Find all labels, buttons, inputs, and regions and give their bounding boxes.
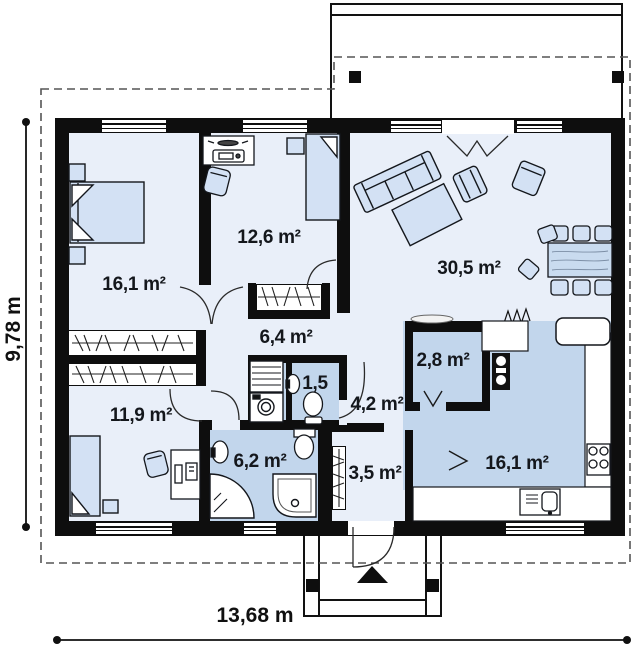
porch-post-right bbox=[426, 579, 439, 592]
dimension-height-label: 9,78 m bbox=[2, 283, 26, 375]
coat-closet bbox=[332, 446, 346, 510]
terrace-post-right bbox=[612, 71, 624, 83]
wardrobe-bedroom-1 bbox=[68, 330, 198, 356]
room-label-living: 30,5 m² bbox=[437, 258, 500, 280]
door-opening bbox=[199, 285, 211, 330]
wall bbox=[405, 402, 420, 411]
terrace-post-left bbox=[349, 71, 361, 83]
room-label-bedroom-1: 16,1 m² bbox=[102, 274, 165, 296]
window bbox=[242, 119, 308, 133]
wall bbox=[405, 321, 413, 411]
wall bbox=[286, 357, 292, 428]
wall bbox=[446, 402, 490, 411]
wall bbox=[339, 355, 347, 400]
floor-plan: 16,1 m² 12,6 m² 30,5 m² 6,4 m² 1,5 4,2 m… bbox=[0, 0, 640, 648]
wall bbox=[199, 420, 210, 524]
wall bbox=[482, 321, 490, 402]
wall bbox=[248, 355, 256, 428]
wall bbox=[199, 420, 212, 430]
room-label-bathroom: 6,2 m² bbox=[233, 451, 286, 473]
room-label-kitchen: 16,1 m² bbox=[485, 453, 548, 475]
wall bbox=[318, 420, 332, 524]
terrace-edge-line bbox=[332, 14, 621, 16]
entry-porch bbox=[303, 533, 442, 617]
wall bbox=[248, 311, 330, 319]
window bbox=[101, 119, 167, 133]
room-label-bedroom-2: 12,6 m² bbox=[237, 227, 300, 249]
wall bbox=[199, 133, 211, 285]
porch-line bbox=[318, 535, 320, 615]
door-opening bbox=[212, 420, 240, 430]
room-label-corridor: 6,4 m² bbox=[259, 327, 312, 349]
terrace-door-opening bbox=[442, 120, 514, 134]
wardrobe-bedroom-3 bbox=[68, 363, 198, 386]
window bbox=[505, 522, 585, 535]
terrace bbox=[330, 3, 623, 123]
window bbox=[243, 522, 277, 535]
wall bbox=[248, 355, 347, 363]
room-label-pantry: 2,8 m² bbox=[416, 350, 469, 372]
window bbox=[95, 522, 173, 535]
porch-line bbox=[425, 535, 427, 615]
entry-door-opening bbox=[348, 521, 394, 535]
wall bbox=[196, 330, 206, 386]
window bbox=[390, 120, 442, 133]
door-opening bbox=[199, 387, 211, 420]
wall bbox=[68, 356, 198, 363]
wc-floor bbox=[248, 355, 347, 428]
wall bbox=[405, 321, 490, 332]
window bbox=[516, 120, 563, 133]
room-label-vestibule: 3,5 m² bbox=[348, 463, 401, 485]
wall bbox=[337, 133, 350, 313]
wall bbox=[405, 430, 413, 521]
door-opening bbox=[339, 400, 347, 425]
door-opening bbox=[330, 283, 337, 316]
room-label-hall: 4,2 m² bbox=[350, 394, 403, 416]
wall-west bbox=[55, 118, 69, 536]
room-label-wc: 1,5 bbox=[302, 373, 328, 395]
porch-post-left bbox=[306, 579, 319, 592]
wall-east bbox=[611, 118, 625, 536]
room-label-bedroom-3: 11,9 m² bbox=[110, 405, 172, 427]
closet-bedroom-2 bbox=[256, 284, 322, 311]
porch-line bbox=[318, 599, 427, 601]
dimension-width-label: 13,68 m bbox=[190, 604, 320, 628]
